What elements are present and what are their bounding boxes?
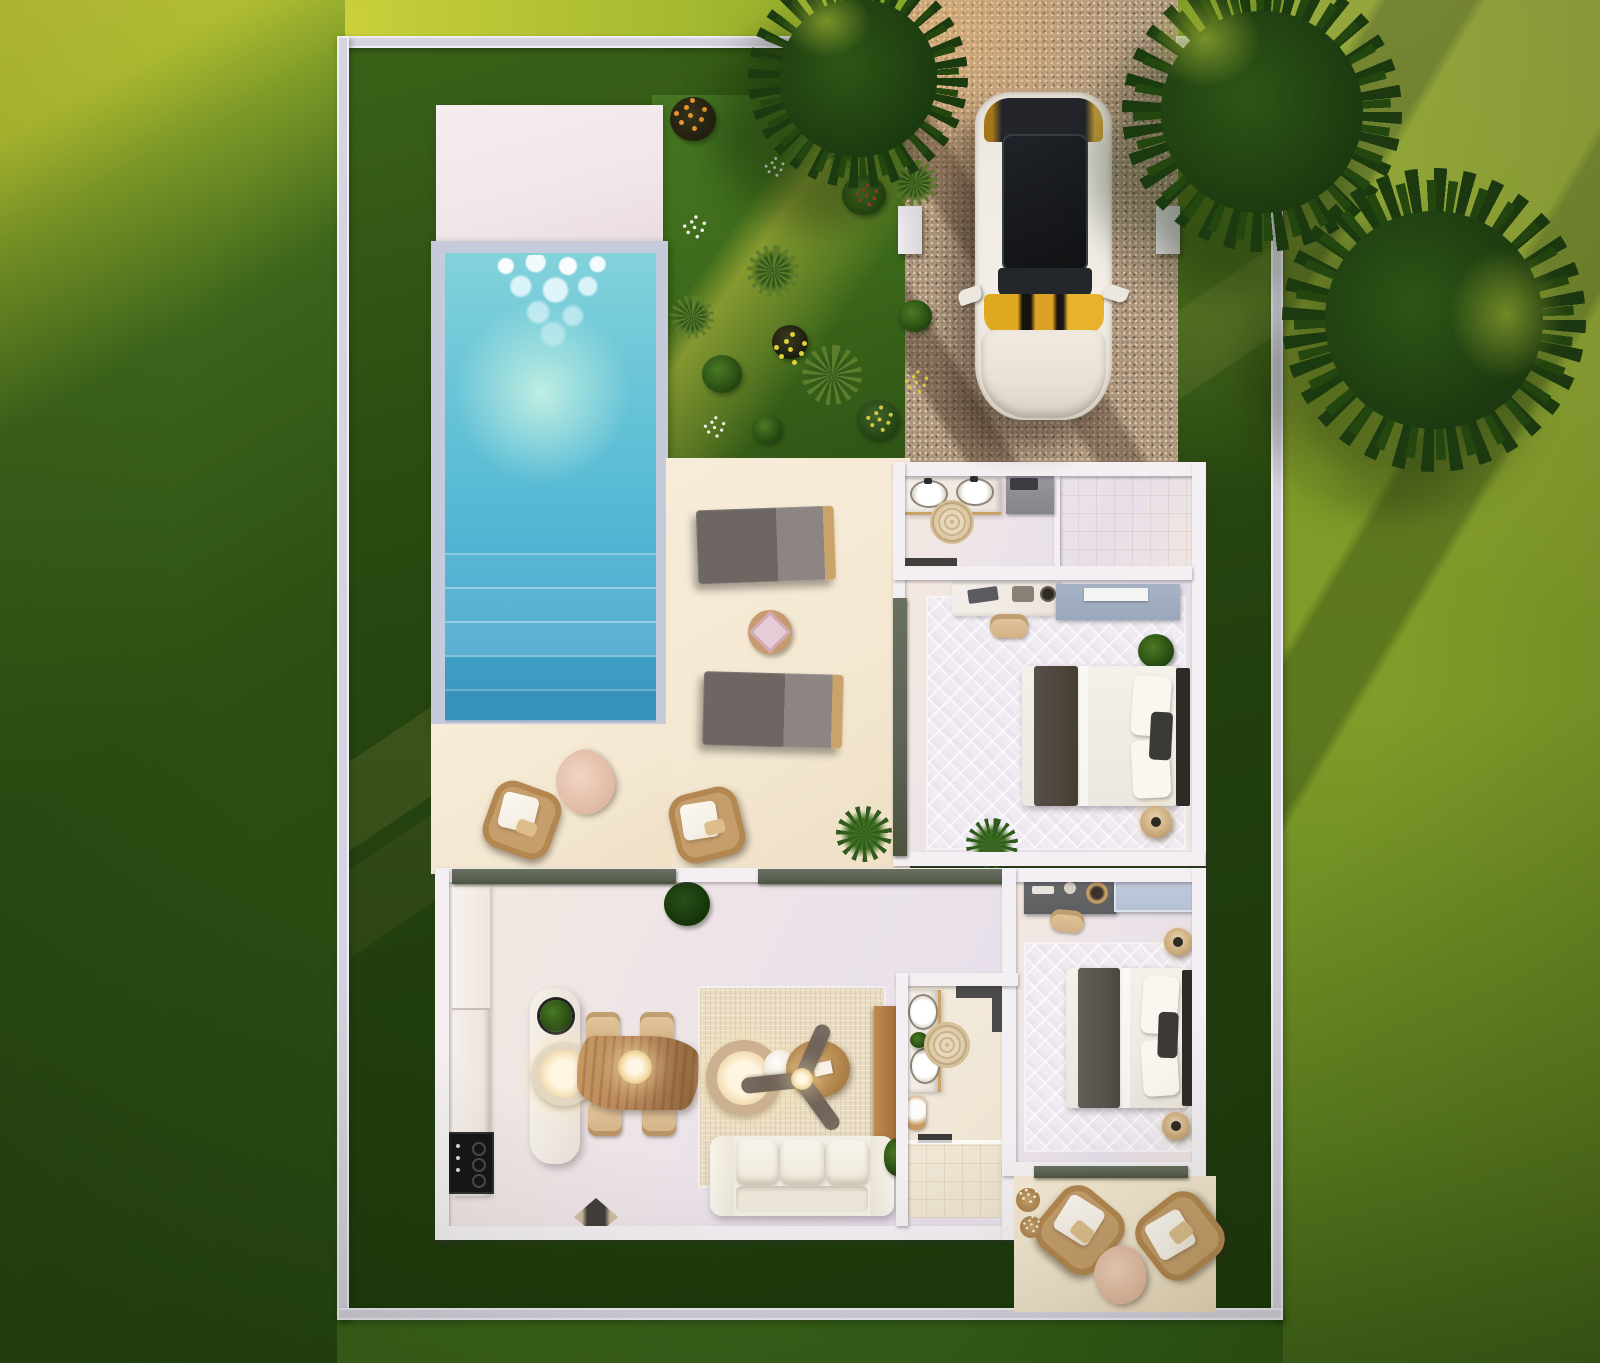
- bed1-sheet-fold: [1080, 666, 1088, 806]
- boundary-wall-left: [337, 36, 349, 1320]
- shrub: [702, 355, 742, 393]
- bed2-sheet-fold: [1122, 968, 1130, 1108]
- toilet: [906, 1096, 926, 1130]
- upper-wall-east: [1192, 462, 1206, 866]
- bathroom1-round-rug: [930, 500, 974, 544]
- pool: [431, 241, 668, 728]
- shrub: [752, 415, 782, 443]
- flower-cluster-red: [865, 194, 869, 198]
- bathroom2-shower: [908, 1144, 1004, 1218]
- sofa-cushion: [780, 1140, 824, 1184]
- bedroom1-sliding-door: [893, 598, 907, 856]
- sofa-back: [736, 1186, 868, 1212]
- bedroom2-pouf-lamp: [1162, 1112, 1190, 1140]
- sliding-door-track-east: [758, 869, 1008, 884]
- sun-lounger: [702, 671, 844, 749]
- pool-waterfall: [491, 255, 615, 347]
- towel: [1010, 478, 1038, 490]
- bathroom2-sink: [910, 996, 936, 1028]
- bed2-accent-pillow: [1157, 1012, 1179, 1059]
- pot-flowers-white: [1027, 1193, 1030, 1196]
- pool-water: [445, 253, 656, 720]
- driveway-plant: [898, 300, 932, 332]
- flower-pot: [1016, 1188, 1040, 1212]
- flower-cluster-yellow: [788, 347, 793, 352]
- lower-wall-west: [435, 868, 449, 1240]
- floor-plan-render: [0, 0, 1600, 1363]
- bathroom2-wall-west: [896, 973, 908, 1226]
- desk-tray: [1012, 586, 1034, 602]
- shower-glass: [908, 1140, 1004, 1144]
- sliding-door-track-west: [452, 869, 676, 884]
- lawn-south-strip: [337, 1318, 1283, 1363]
- spiky-plant: [747, 245, 799, 297]
- pool-step: [445, 655, 656, 691]
- pouf-center: [1151, 817, 1161, 827]
- lawn-left: [0, 0, 349, 1363]
- bedroom2-chair: [1049, 908, 1085, 933]
- island-plant: [540, 1000, 572, 1032]
- flower-cluster-white: [693, 226, 697, 230]
- tree: [1282, 168, 1586, 472]
- flower-pot: [1020, 1216, 1042, 1238]
- gate-post-left: [898, 206, 922, 254]
- hallway-plant: [664, 882, 710, 926]
- tree: [748, 0, 968, 188]
- bathroom1-shower-divider: [1054, 476, 1060, 568]
- patio-door-threshold: [1034, 1166, 1188, 1178]
- sofa-cushion: [736, 1140, 778, 1184]
- bathroom2-round-rug: [924, 1022, 970, 1068]
- pool-step: [445, 689, 656, 722]
- round-basket: [1086, 882, 1108, 904]
- faucet: [970, 476, 978, 482]
- side-table: [748, 610, 792, 654]
- burner: [472, 1158, 486, 1172]
- car-windshield: [984, 294, 1104, 334]
- knob: [456, 1156, 460, 1160]
- dresser-tray: [1032, 886, 1054, 894]
- faucet: [924, 478, 932, 484]
- bedroom2-dresser: [1024, 878, 1116, 914]
- pool-step: [445, 587, 656, 623]
- pool-step: [445, 553, 656, 589]
- bed1-throw-blanket: [1034, 666, 1078, 806]
- pouf-center: [1173, 937, 1183, 947]
- sofa-cushion: [826, 1140, 868, 1184]
- knob: [456, 1168, 460, 1172]
- lower-wall-south: [435, 1226, 1018, 1240]
- desk-chair: [990, 614, 1028, 638]
- coffee-cup: [1040, 586, 1056, 602]
- burner: [472, 1174, 486, 1188]
- upper-wall-north: [893, 462, 1205, 476]
- bed2-throw-blanket: [1078, 968, 1120, 1108]
- pool-deck: [436, 105, 663, 247]
- bedroom2-pouf-lamp: [1164, 928, 1192, 956]
- shrub: [670, 97, 716, 141]
- bathroom1-sink: [958, 480, 992, 504]
- living-console: [874, 1006, 898, 1142]
- side-table-top: [749, 611, 791, 653]
- dining-pendant-lamp: [618, 1050, 652, 1084]
- car-hood: [981, 330, 1106, 418]
- upper-wall-mid: [893, 566, 1192, 580]
- burner: [472, 1142, 486, 1156]
- sun-lounger: [696, 506, 836, 585]
- pool-step: [445, 621, 656, 657]
- pot-flowers-white: [1030, 1223, 1033, 1226]
- kitchen-cooktop: [448, 1134, 492, 1192]
- shrub: [772, 325, 808, 359]
- bed1-headboard: [1176, 668, 1190, 806]
- flower-cluster-orange: [688, 113, 693, 118]
- flower-cluster-yellow: [915, 381, 919, 385]
- kitchen-fridge-cabinet: [452, 884, 490, 1010]
- flower-cluster-yellow: [878, 418, 882, 422]
- spiky-plant: [670, 295, 714, 339]
- vase: [1064, 882, 1076, 894]
- tv-panel: [1084, 588, 1148, 601]
- knob: [456, 1144, 460, 1148]
- ceiling-fan: [756, 1034, 846, 1124]
- bedroom1-plant: [1138, 634, 1174, 668]
- chair-pillow: [703, 818, 726, 836]
- pouf-center: [1171, 1121, 1181, 1131]
- bedroom2-wall-east: [1192, 868, 1206, 1176]
- upper-wall-south: [893, 852, 1205, 866]
- flower-cluster-white: [713, 426, 716, 429]
- car-roof-glass: [1002, 134, 1088, 272]
- upper-wall-west: [893, 462, 905, 604]
- bedroom1-pouf-lamp: [1140, 806, 1172, 838]
- bathroom1-shower: [1060, 476, 1192, 568]
- terrace-palm-plant: [836, 806, 892, 862]
- bathroom2-wall-north: [896, 973, 1018, 986]
- sofa-armrest: [710, 1136, 734, 1216]
- tree-highlight: [1428, 223, 1586, 405]
- sofa: [710, 1136, 894, 1216]
- spiky-plant: [802, 345, 862, 405]
- fan-light: [791, 1068, 813, 1090]
- bed1-accent-pillow: [1149, 711, 1173, 760]
